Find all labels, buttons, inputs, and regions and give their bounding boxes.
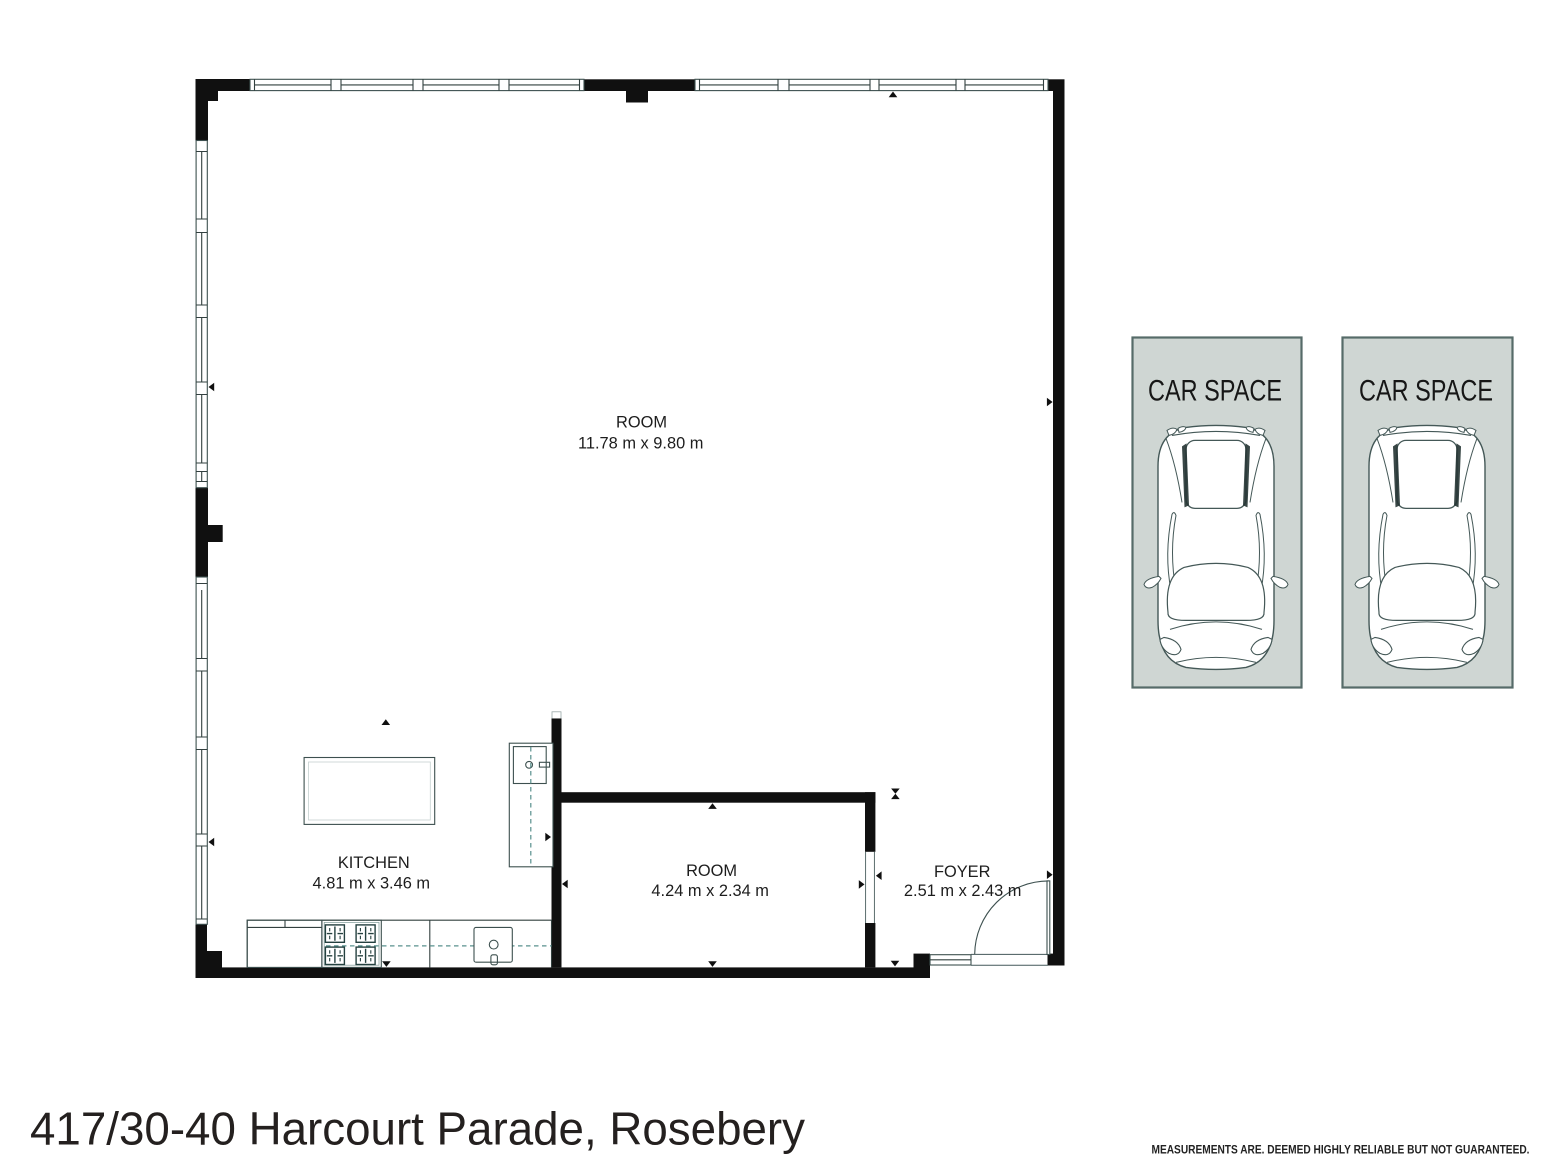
svg-text:CAR SPACE: CAR SPACE bbox=[1359, 375, 1493, 408]
svg-text:4.24 m x 2.34 m: 4.24 m x 2.34 m bbox=[651, 882, 769, 900]
svg-text:MEASUREMENTS ARE. DEEMED HIGHL: MEASUREMENTS ARE. DEEMED HIGHLY RELIABLE… bbox=[1152, 1143, 1530, 1157]
svg-text:2.51 m x 2.43 m: 2.51 m x 2.43 m bbox=[904, 882, 1022, 900]
svg-text:CAR SPACE: CAR SPACE bbox=[1148, 375, 1282, 408]
svg-text:417/30-40 Harcourt Parade, Ros: 417/30-40 Harcourt Parade, Rosebery bbox=[30, 1103, 805, 1155]
svg-text:ROOM: ROOM bbox=[616, 413, 667, 431]
svg-text:11.78 m x 9.80 m: 11.78 m x 9.80 m bbox=[578, 434, 703, 452]
svg-text:4.81 m x 3.46 m: 4.81 m x 3.46 m bbox=[313, 875, 431, 893]
svg-text:ROOM: ROOM bbox=[686, 862, 737, 880]
svg-text:FOYER: FOYER bbox=[934, 863, 991, 881]
svg-text:KITCHEN: KITCHEN bbox=[338, 854, 410, 872]
